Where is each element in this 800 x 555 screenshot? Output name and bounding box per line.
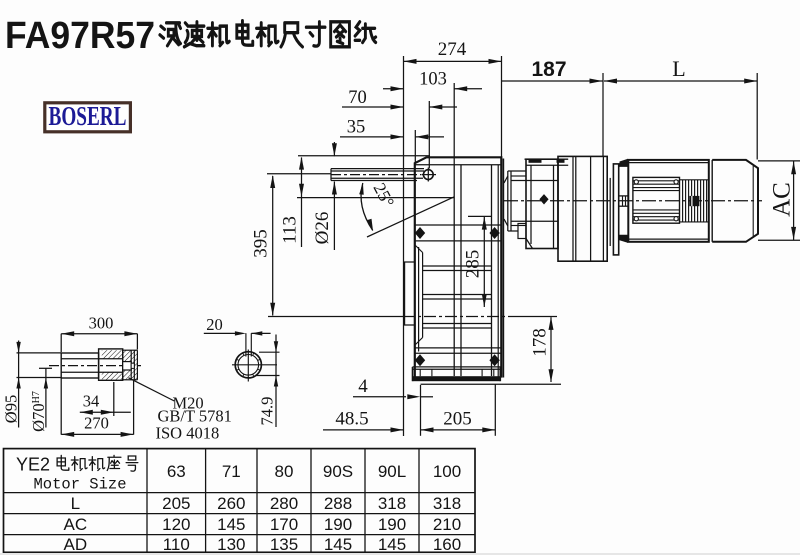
svg-text:210: 210 <box>433 515 461 534</box>
svg-text:80: 80 <box>275 462 294 481</box>
svg-text:190: 190 <box>378 515 406 534</box>
svg-text:20: 20 <box>206 315 223 334</box>
svg-text:130: 130 <box>217 535 245 554</box>
svg-text:ISO 4018: ISO 4018 <box>156 424 220 443</box>
svg-text:34: 34 <box>83 392 100 411</box>
svg-text:120: 120 <box>162 515 190 534</box>
svg-text:90L: 90L <box>378 462 406 481</box>
svg-text:135: 135 <box>270 535 298 554</box>
svg-text:270: 270 <box>84 414 109 433</box>
svg-text:100: 100 <box>433 462 461 481</box>
svg-text:285: 285 <box>463 250 484 279</box>
svg-text:90S: 90S <box>323 462 353 481</box>
svg-text:145: 145 <box>378 535 406 554</box>
svg-text:160: 160 <box>433 535 461 554</box>
svg-text:L: L <box>672 56 685 81</box>
svg-text:280: 280 <box>270 494 298 513</box>
svg-text:395: 395 <box>251 229 272 258</box>
svg-text:74.9: 74.9 <box>258 397 277 426</box>
svg-text:145: 145 <box>324 535 352 554</box>
svg-text:205: 205 <box>162 494 190 513</box>
svg-text:Motor Size: Motor Size <box>33 476 126 494</box>
svg-text:AD: AD <box>63 535 87 554</box>
svg-text:AC: AC <box>63 515 87 534</box>
svg-text:AC: AC <box>769 182 796 217</box>
svg-text:288: 288 <box>324 494 352 513</box>
svg-text:190: 190 <box>324 515 352 534</box>
svg-text:113: 113 <box>280 216 301 244</box>
svg-text:300: 300 <box>89 314 114 333</box>
svg-text:YE2: YE2 <box>16 455 50 475</box>
svg-text:110: 110 <box>163 535 190 554</box>
svg-text:L: L <box>71 494 80 513</box>
svg-text:260: 260 <box>217 494 245 513</box>
svg-text:170: 170 <box>270 515 298 534</box>
svg-text:63: 63 <box>167 462 186 481</box>
svg-text:187: 187 <box>531 58 566 81</box>
svg-text:Ø26: Ø26 <box>312 212 333 245</box>
svg-text:178: 178 <box>530 328 551 357</box>
svg-text:4: 4 <box>358 376 368 397</box>
svg-text:274: 274 <box>438 39 467 60</box>
svg-text:71: 71 <box>222 462 241 481</box>
svg-text:Ø95: Ø95 <box>2 395 21 423</box>
svg-text:70: 70 <box>348 88 367 108</box>
svg-text:103: 103 <box>419 70 447 90</box>
svg-text:145: 145 <box>217 515 245 534</box>
svg-text:BOSERL: BOSERL <box>49 101 127 131</box>
svg-text:48.5: 48.5 <box>335 409 368 430</box>
svg-text:205: 205 <box>443 409 472 430</box>
svg-text:318: 318 <box>433 494 461 513</box>
svg-text:FA97R57: FA97R57 <box>5 15 155 57</box>
svg-text:35: 35 <box>347 118 366 138</box>
svg-text:318: 318 <box>378 494 406 513</box>
